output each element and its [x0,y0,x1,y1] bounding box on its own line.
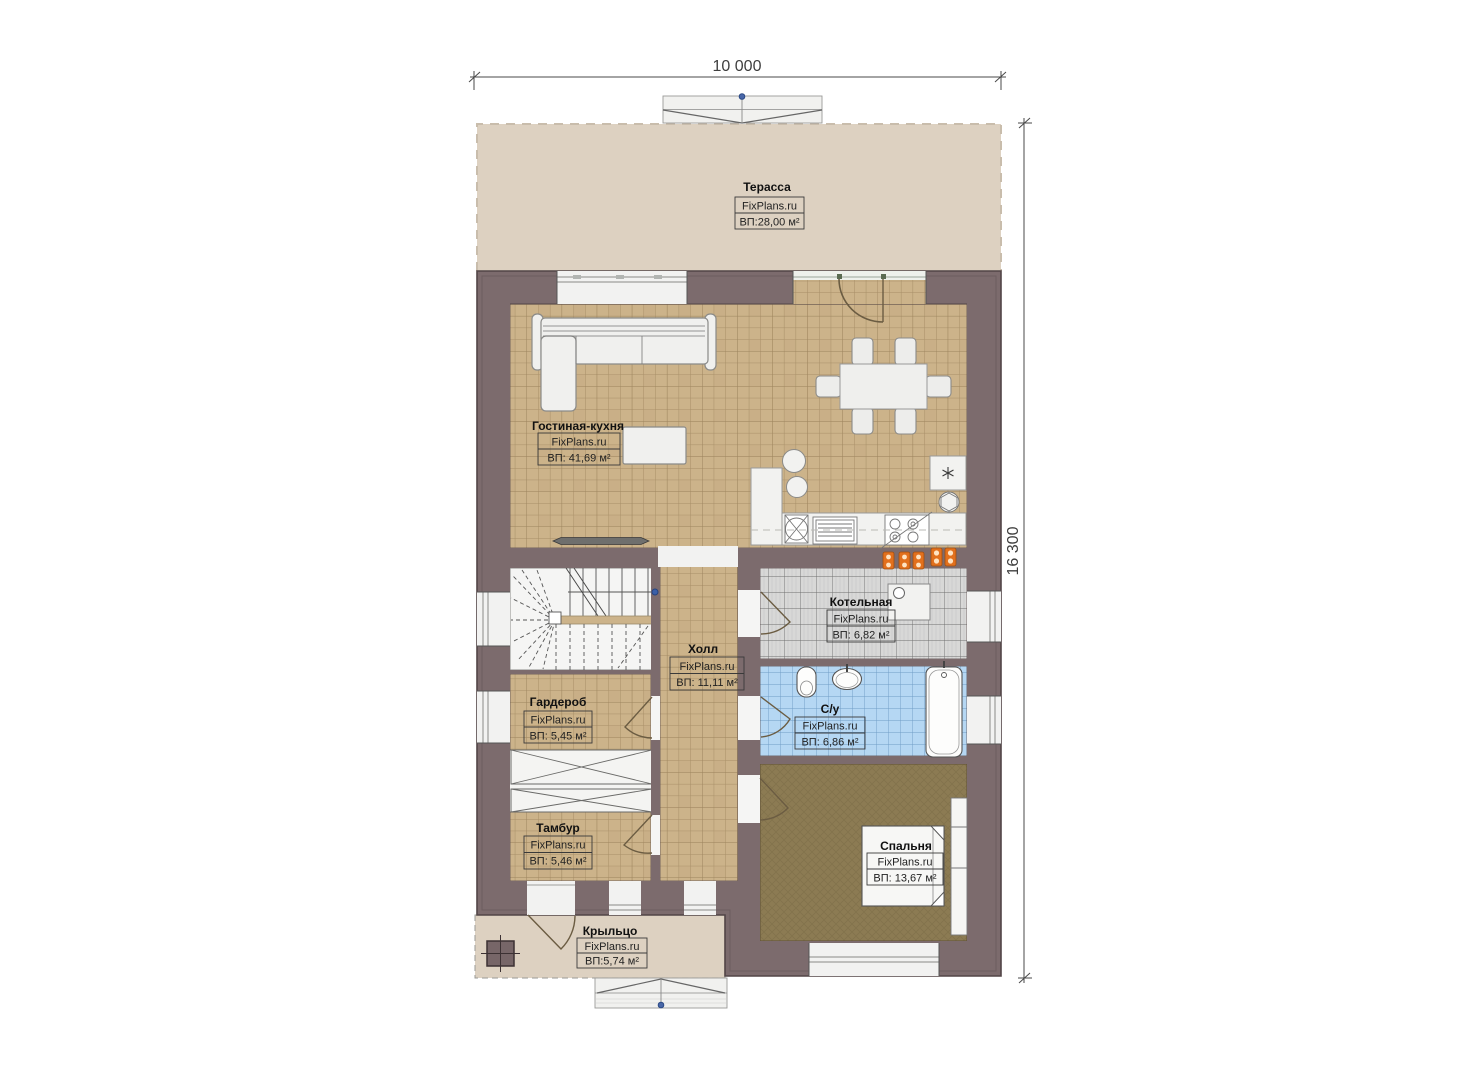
svg-text:ВП: 11,11 м²: ВП: 11,11 м² [676,677,738,689]
svg-text:ВП: 41,69 м²: ВП: 41,69 м² [547,453,611,465]
svg-text:ВП:28,00 м²: ВП:28,00 м² [739,217,799,229]
svg-text:FixPlans.ru: FixPlans.ru [877,857,932,869]
svg-text:FixPlans.ru: FixPlans.ru [551,437,606,449]
svg-text:FixPlans.ru: FixPlans.ru [584,941,639,953]
svg-text:Тамбур: Тамбур [536,821,580,835]
svg-text:ВП:5,74 м²: ВП:5,74 м² [585,956,639,968]
svg-text:FixPlans.ru: FixPlans.ru [742,201,797,213]
svg-text:FixPlans.ru: FixPlans.ru [530,840,585,852]
svg-text:Спальня: Спальня [880,839,932,853]
svg-text:Холл: Холл [688,642,718,656]
svg-text:ВП: 13,67 м²: ВП: 13,67 м² [873,873,937,885]
svg-text:10 000: 10 000 [713,58,762,75]
svg-text:FixPlans.ru: FixPlans.ru [833,614,888,626]
svg-text:Гостиная-кухня: Гостиная-кухня [532,419,624,433]
svg-text:Котельная: Котельная [830,595,893,609]
svg-text:ВП: 5,45 м²: ВП: 5,45 м² [529,731,586,743]
svg-text:С/у: С/у [821,702,840,716]
svg-text:FixPlans.ru: FixPlans.ru [679,661,734,673]
svg-text:ВП: 5,46 м²: ВП: 5,46 м² [529,856,586,868]
svg-text:ВП: 6,82 м²: ВП: 6,82 м² [832,630,889,642]
svg-text:Крыльцо: Крыльцо [583,924,638,938]
svg-text:16 300: 16 300 [1005,526,1022,575]
svg-text:Гардероб: Гардероб [530,695,587,709]
svg-text:FixPlans.ru: FixPlans.ru [802,721,857,733]
svg-text:Терасса: Терасса [743,180,791,194]
svg-text:FixPlans.ru: FixPlans.ru [530,715,585,727]
svg-text:ВП: 6,86 м²: ВП: 6,86 м² [801,737,858,749]
